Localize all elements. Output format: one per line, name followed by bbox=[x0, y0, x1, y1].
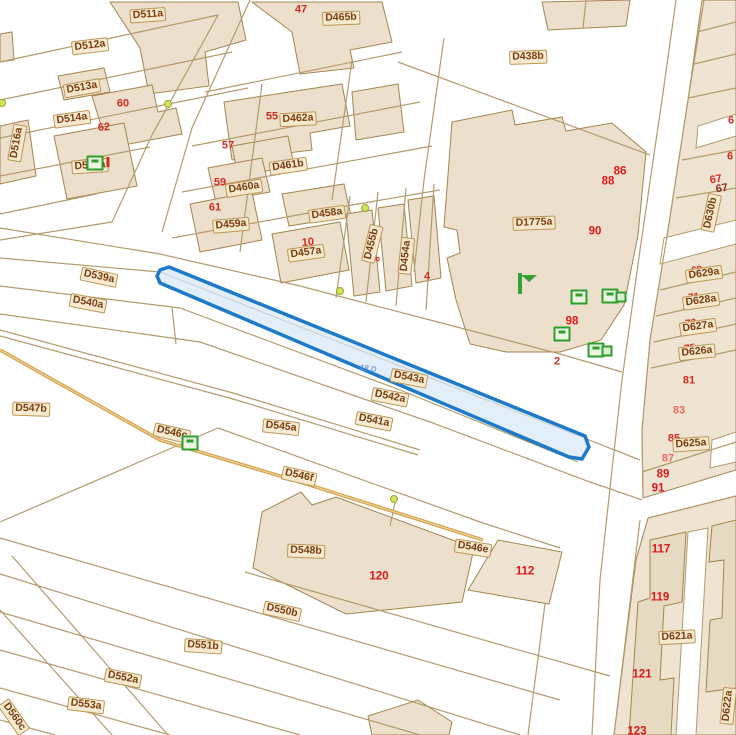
map-canvas bbox=[0, 0, 736, 735]
map-viewport[interactable]: 64D511aD512aD513a60D514a62D516aD515a47D4… bbox=[0, 0, 736, 735]
